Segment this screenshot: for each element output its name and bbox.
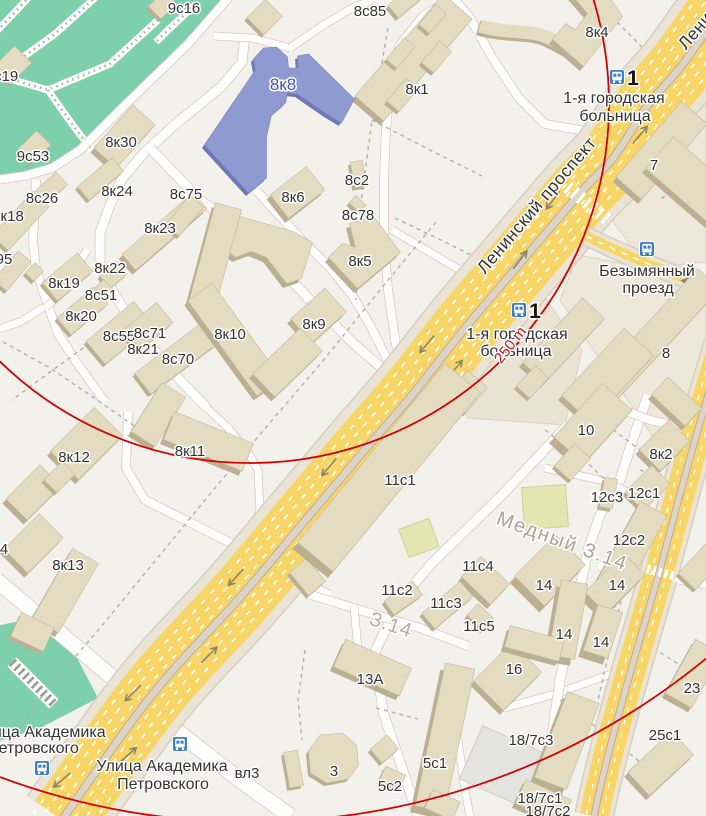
svg-text:8с71: 8с71 (134, 325, 167, 342)
svg-text:16: 16 (506, 661, 523, 678)
svg-text:9с53: 9с53 (17, 148, 50, 165)
svg-text:8к30: 8к30 (105, 134, 137, 151)
svg-text:12с2: 12с2 (613, 532, 646, 549)
svg-text:больница: больница (579, 108, 650, 125)
svg-text:14: 14 (593, 634, 610, 651)
svg-text:5с1: 5с1 (423, 755, 447, 772)
svg-text:4: 4 (0, 541, 8, 558)
svg-text:7: 7 (650, 157, 658, 174)
svg-text:11с2: 11с2 (381, 582, 412, 599)
svg-text:8к21: 8к21 (127, 341, 159, 358)
svg-text:5с2: 5с2 (378, 778, 402, 795)
svg-text:8к10: 8к10 (214, 326, 246, 343)
svg-text:11с3: 11с3 (430, 595, 461, 612)
svg-text:10: 10 (578, 422, 595, 439)
svg-text:8к4: 8к4 (585, 24, 608, 41)
svg-text:проезд: проезд (622, 280, 674, 297)
svg-text:12с3: 12с3 (591, 489, 624, 506)
svg-text:Петровского: Петровского (117, 776, 209, 793)
svg-text:8с75: 8с75 (170, 186, 203, 203)
svg-text:25с1: 25с1 (649, 727, 682, 744)
svg-text:Петровского: Петровского (0, 740, 79, 757)
svg-text:11с5: 11с5 (463, 618, 494, 635)
svg-text:8с2: 8с2 (345, 172, 369, 189)
svg-text:12с1: 12с1 (628, 485, 661, 502)
svg-text:Улица Академика: Улица Академика (0, 724, 106, 741)
svg-text:вл3: вл3 (235, 765, 260, 782)
svg-text:9с19: 9с19 (0, 68, 18, 85)
svg-text:3: 3 (330, 763, 338, 780)
svg-text:8к6: 8к6 (281, 189, 304, 206)
svg-text:13A: 13A (357, 671, 384, 688)
svg-text:1: 1 (529, 300, 541, 323)
svg-text:8: 8 (662, 345, 670, 362)
svg-text:8с70: 8с70 (162, 351, 195, 368)
svg-text:8к13: 8к13 (52, 557, 84, 574)
svg-text:8к2: 8к2 (649, 446, 672, 463)
svg-text:8к11: 8к11 (175, 443, 205, 460)
svg-text:23: 23 (684, 680, 701, 697)
svg-text:8к12: 8к12 (58, 449, 90, 466)
svg-text:95: 95 (0, 251, 12, 268)
svg-text:8к18: 8к18 (0, 208, 24, 225)
svg-text:8к22: 8к22 (94, 260, 126, 277)
svg-text:14: 14 (609, 577, 626, 594)
svg-text:8к5: 8к5 (348, 253, 371, 270)
svg-text:8к8: 8к8 (270, 75, 296, 94)
svg-text:8с85: 8с85 (354, 3, 387, 20)
svg-text:18/7с2: 18/7с2 (525, 803, 570, 816)
svg-text:1: 1 (627, 67, 639, 90)
svg-text:8к9: 8к9 (302, 316, 325, 333)
svg-text:Безымянный: Безымянный (599, 263, 695, 280)
svg-text:8с51: 8с51 (85, 287, 118, 304)
svg-text:8к23: 8к23 (144, 220, 176, 237)
svg-text:8к20: 8к20 (65, 308, 97, 325)
svg-text:1-я городская: 1-я городская (563, 90, 664, 107)
svg-text:11с4: 11с4 (462, 558, 493, 575)
svg-text:8с26: 8с26 (26, 190, 59, 207)
svg-text:18/7с3: 18/7с3 (508, 732, 553, 749)
svg-text:Улица Академика: Улица Академика (96, 758, 227, 775)
svg-text:11с1: 11с1 (384, 472, 415, 489)
svg-text:8к1: 8к1 (405, 81, 428, 98)
svg-text:8к24: 8к24 (101, 183, 133, 200)
svg-text:9с16: 9с16 (168, 0, 201, 17)
svg-text:14: 14 (536, 577, 553, 594)
svg-text:8к19: 8к19 (48, 275, 80, 292)
svg-text:14: 14 (556, 626, 573, 643)
svg-text:8с78: 8с78 (342, 207, 375, 224)
